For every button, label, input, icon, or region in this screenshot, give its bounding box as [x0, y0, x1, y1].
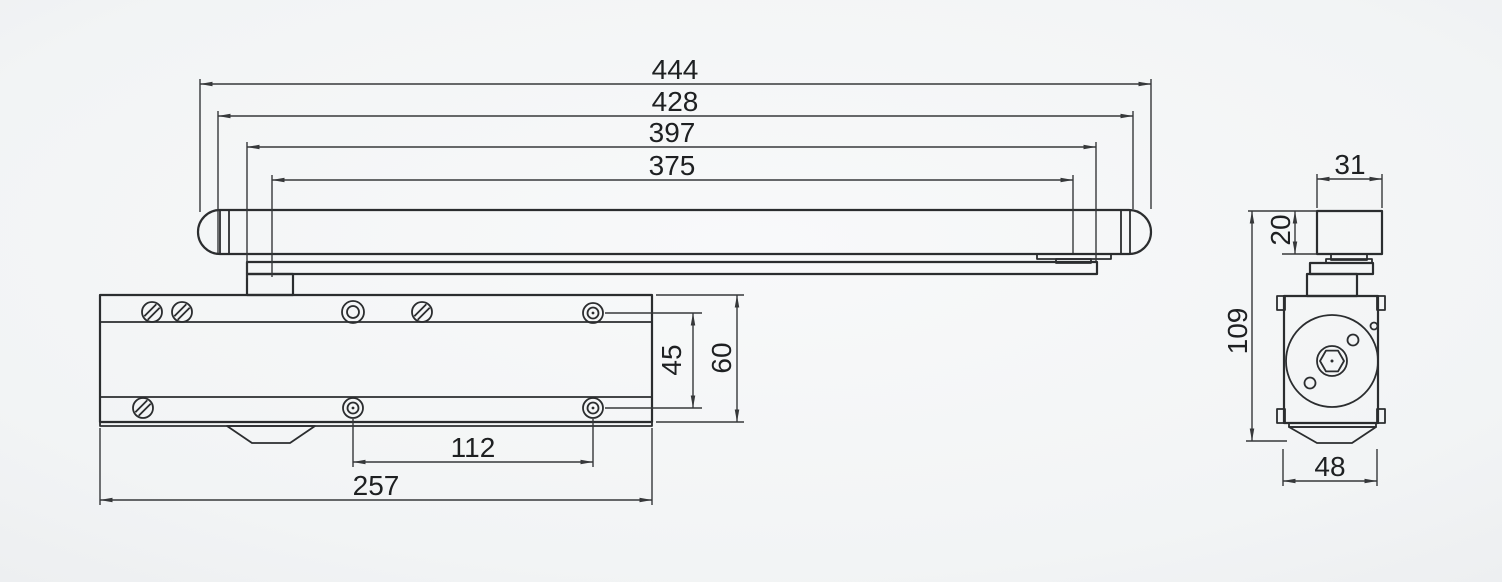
dim-label-body-depth: 48: [1314, 451, 1345, 482]
dim-label-rail-length: 428: [652, 86, 699, 117]
drawing-canvas: 444 428 397 375 112: [0, 0, 1502, 582]
dim-label-rail-width: 31: [1334, 149, 1365, 180]
dim-label-rail-height: 20: [1265, 214, 1296, 245]
dim-label-hole-rise: 45: [656, 344, 687, 375]
dim-label-overall-length: 444: [652, 54, 699, 85]
dim-label-hole-pitch: 112: [451, 432, 496, 463]
drawing-background: [0, 0, 1502, 582]
dim-label-slide-travel: 375: [649, 150, 696, 181]
technical-drawing: 444 428 397 375 112: [0, 0, 1502, 582]
dim-label-overall-height: 109: [1222, 308, 1253, 355]
dim-label-body-height: 60: [706, 342, 737, 373]
dim-label-body-length: 257: [353, 470, 400, 501]
dim-label-arm-length: 397: [649, 117, 696, 148]
